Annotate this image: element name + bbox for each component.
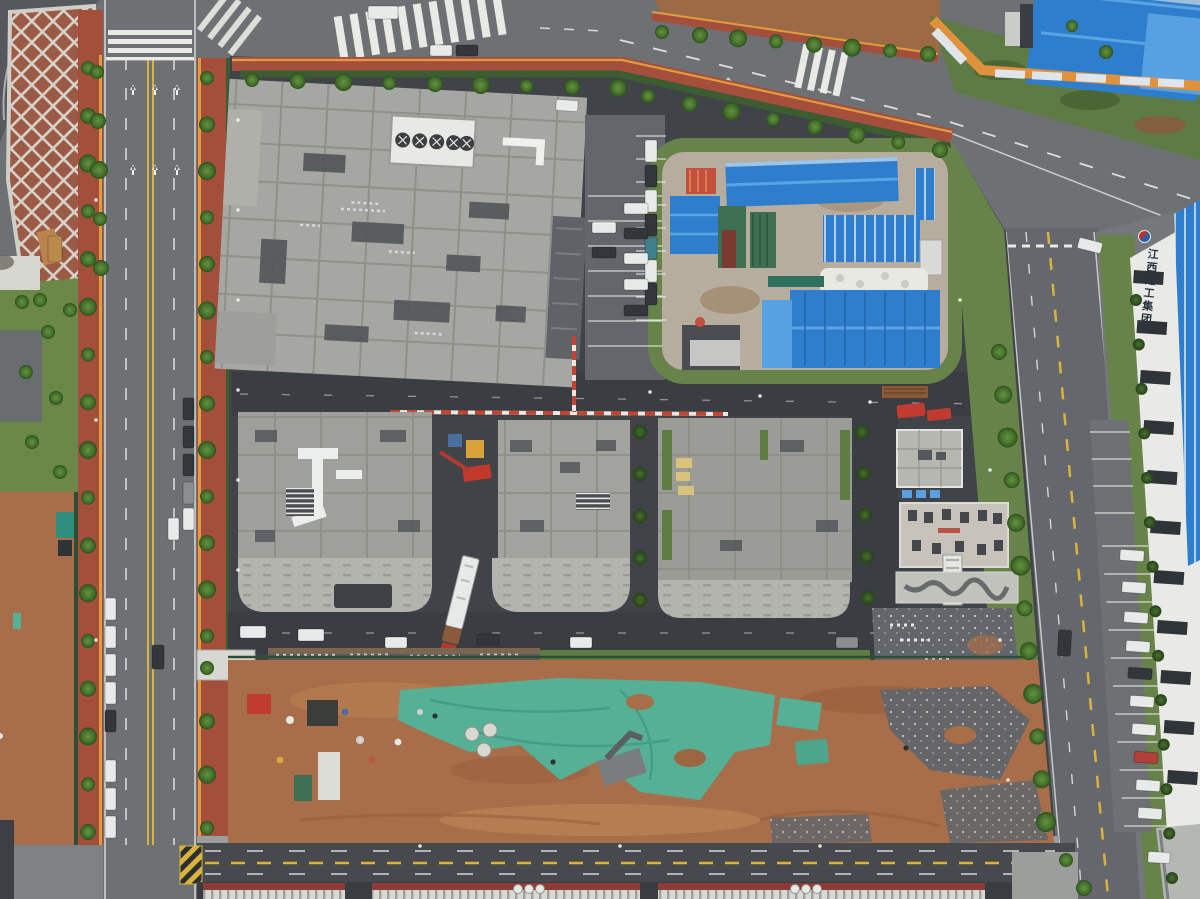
car	[456, 45, 478, 56]
tree	[1017, 600, 1033, 616]
tree	[1066, 20, 1078, 32]
window-band	[1164, 720, 1195, 735]
shrub	[855, 425, 869, 439]
tree	[1020, 642, 1038, 660]
tree	[641, 89, 655, 103]
tree	[848, 126, 866, 144]
tree	[80, 251, 96, 267]
small-tarp-scrap	[13, 613, 21, 629]
shrub	[861, 591, 875, 605]
pipe-rack-red	[722, 230, 736, 268]
car	[183, 426, 194, 448]
car	[368, 6, 398, 19]
car	[1120, 549, 1145, 562]
entrance-canopy	[334, 584, 392, 608]
shrub	[633, 593, 647, 607]
car	[624, 279, 648, 290]
tree	[80, 681, 96, 697]
shrub	[633, 425, 647, 439]
bottomleft-pavement	[0, 845, 103, 899]
tree	[729, 29, 747, 47]
lamp-post	[236, 118, 240, 122]
white-stack	[318, 752, 340, 800]
car	[1057, 630, 1071, 657]
long-building-g	[896, 572, 1018, 603]
blue-shed-south	[790, 290, 940, 368]
manhole	[550, 759, 555, 764]
car	[105, 598, 116, 620]
shrub	[1152, 650, 1164, 662]
car	[1132, 723, 1157, 736]
shrub	[1155, 694, 1167, 706]
blue-shed-west	[670, 196, 720, 254]
lamp-post	[958, 298, 962, 302]
lamp-post	[868, 400, 872, 404]
factory-annex	[215, 311, 278, 366]
apron-c	[492, 558, 630, 612]
blue-shed-east-col	[915, 168, 935, 220]
lamp-post	[618, 844, 622, 848]
white-tents	[690, 340, 740, 366]
car	[152, 645, 164, 669]
roof-d-grid	[658, 418, 852, 582]
bush	[33, 293, 47, 307]
tree	[81, 204, 95, 218]
left-road-surface	[103, 0, 197, 899]
shrub	[1147, 561, 1159, 573]
shrub	[633, 467, 647, 481]
tarp-hole	[674, 749, 706, 767]
left-road	[103, 0, 197, 899]
car	[183, 398, 194, 420]
lamp-post	[94, 198, 98, 202]
bush	[41, 325, 55, 339]
car	[556, 99, 579, 112]
shrub	[858, 508, 872, 522]
lamp-post	[236, 568, 240, 572]
tree	[692, 27, 708, 43]
warehouse-segment	[203, 883, 345, 899]
car	[1124, 611, 1149, 624]
tree	[198, 441, 216, 459]
shrub	[1136, 383, 1148, 395]
workshop-d	[658, 418, 852, 618]
mini-excavator-cab	[58, 540, 72, 556]
car	[1138, 807, 1163, 820]
tarp-patch	[776, 697, 821, 731]
tree	[994, 386, 1012, 404]
tree	[1033, 770, 1051, 788]
shrub	[1141, 472, 1153, 484]
manhole	[903, 745, 908, 750]
car	[105, 788, 116, 810]
white-structure	[1005, 12, 1021, 46]
tree	[807, 119, 823, 135]
tree	[290, 73, 306, 89]
tree	[80, 394, 96, 410]
car	[105, 760, 116, 782]
car	[48, 236, 62, 262]
tree	[81, 348, 95, 362]
tree	[90, 161, 108, 179]
lamp-post	[236, 208, 240, 212]
car	[1128, 667, 1153, 680]
mini-excavator	[56, 512, 74, 538]
shrub	[857, 467, 871, 481]
shrub	[1158, 739, 1170, 751]
car	[168, 518, 179, 540]
red-shelter	[247, 694, 271, 714]
white-wall-mark	[536, 139, 545, 165]
factory-building	[214, 79, 593, 388]
lamp-post	[648, 390, 652, 394]
aerial-scene	[0, 0, 1200, 899]
tree	[79, 441, 97, 459]
tree	[335, 73, 353, 91]
tree	[93, 260, 109, 276]
window-band	[1167, 770, 1198, 785]
bottom-road	[180, 843, 1075, 884]
shrub	[1163, 828, 1175, 840]
car	[1136, 779, 1161, 792]
lamp-post	[998, 638, 1002, 642]
tree	[90, 65, 104, 79]
car	[1130, 695, 1155, 708]
aerial-photo-stage: 江西建工集团	[0, 0, 1200, 899]
car	[105, 816, 116, 838]
rooftop-fan-unit	[389, 115, 475, 167]
dirt-texture	[440, 804, 760, 836]
lamp-post	[236, 478, 240, 482]
teal-beams	[768, 276, 824, 287]
debris-red	[695, 317, 705, 327]
construction-fence	[74, 492, 78, 845]
tree	[198, 162, 216, 180]
dark-tower	[1020, 4, 1033, 48]
window-band	[1157, 620, 1188, 635]
tree	[200, 71, 214, 85]
lamp-post	[818, 844, 822, 848]
plank-stack	[882, 386, 928, 398]
tree	[806, 37, 822, 53]
window-band	[1153, 570, 1184, 585]
tree	[200, 629, 214, 643]
tarp-hole	[626, 694, 654, 710]
tree	[722, 102, 740, 120]
tree	[564, 79, 580, 95]
tree	[520, 79, 534, 93]
lamp-post	[94, 638, 98, 642]
window-band	[1160, 670, 1191, 685]
shrub	[1166, 872, 1178, 884]
tree	[682, 96, 698, 112]
car	[624, 228, 648, 239]
car	[183, 508, 194, 530]
apron-d	[658, 580, 850, 618]
tree	[198, 581, 216, 599]
tree	[200, 211, 214, 225]
tree	[427, 76, 443, 92]
car	[1134, 751, 1159, 764]
tree	[198, 302, 216, 320]
blue-units	[902, 490, 940, 498]
bush	[25, 435, 39, 449]
tree	[200, 350, 214, 364]
tree	[199, 256, 215, 272]
tree	[200, 821, 214, 835]
car	[183, 454, 194, 476]
bush	[63, 303, 77, 317]
company-logo-icon	[1138, 230, 1151, 243]
tree	[1007, 514, 1025, 532]
shrub	[1149, 605, 1161, 617]
car	[592, 222, 616, 233]
tree	[200, 490, 214, 504]
workshop-c	[492, 420, 630, 612]
yard-dirt-patch	[700, 286, 760, 314]
slope-dirt-patch	[1134, 116, 1186, 134]
hatch-box	[180, 846, 202, 884]
tree	[655, 25, 669, 39]
car	[645, 140, 657, 162]
louver-bank	[576, 492, 610, 510]
lamp-post	[1006, 778, 1010, 782]
top-road-surface	[197, 0, 662, 58]
car	[624, 253, 648, 264]
tree	[199, 396, 215, 412]
far-left-lane	[0, 820, 14, 899]
shrub	[860, 550, 874, 564]
tree	[932, 142, 948, 158]
tree	[80, 824, 96, 840]
top-road-west	[197, 0, 662, 60]
tree	[93, 212, 107, 226]
tree	[472, 76, 490, 94]
blue-shed-long	[725, 157, 898, 207]
tree	[79, 728, 97, 746]
car	[105, 682, 116, 704]
car	[105, 626, 116, 648]
lamp-post	[236, 298, 240, 302]
gatehouse	[897, 430, 962, 487]
car	[240, 626, 266, 638]
bush	[53, 465, 67, 479]
tree	[843, 39, 861, 57]
tree	[81, 634, 95, 648]
car	[624, 203, 648, 214]
car	[430, 45, 452, 56]
slope-bushes	[1060, 90, 1120, 110]
tree	[80, 538, 96, 554]
car	[570, 637, 592, 648]
bush	[19, 365, 33, 379]
bush	[49, 391, 63, 405]
tree	[609, 79, 627, 97]
shrub	[1144, 516, 1156, 528]
tree	[1023, 684, 1043, 704]
car	[105, 710, 116, 732]
blue-tarp	[448, 434, 462, 447]
car	[477, 634, 499, 645]
car	[1126, 640, 1151, 653]
lamp-post	[988, 468, 992, 472]
tree	[79, 298, 97, 316]
car	[1148, 851, 1171, 863]
tree	[198, 766, 216, 784]
lamp-post	[94, 418, 98, 422]
green-boards	[294, 775, 312, 801]
lamp-post	[236, 388, 240, 392]
tree	[883, 44, 897, 58]
factory-west-wing	[223, 109, 262, 207]
car	[624, 305, 648, 316]
tree	[769, 34, 783, 48]
excavator	[466, 440, 484, 458]
workshop-b	[238, 412, 432, 612]
car	[105, 654, 116, 676]
car	[645, 165, 657, 187]
dark-hut	[307, 700, 338, 726]
car	[592, 247, 616, 258]
car	[298, 629, 324, 641]
tree	[90, 113, 106, 129]
shrub	[633, 551, 647, 565]
tree	[200, 661, 214, 675]
tree	[1010, 556, 1030, 576]
shrub	[633, 509, 647, 523]
tree	[891, 135, 905, 149]
lamp-post	[418, 844, 422, 848]
tree	[79, 584, 97, 602]
tree	[81, 491, 95, 505]
tree	[245, 73, 259, 87]
tree	[766, 112, 780, 126]
tree	[1059, 853, 1073, 867]
tree	[1004, 472, 1020, 488]
tarp-patch	[795, 738, 829, 765]
tree	[991, 344, 1007, 360]
bush	[15, 295, 29, 309]
tree	[1029, 729, 1045, 745]
pipe-stack-2	[750, 212, 776, 268]
tree	[81, 777, 95, 791]
warehouse-segment	[372, 883, 640, 899]
car	[1122, 581, 1147, 594]
blue-shed-striped	[823, 215, 920, 262]
tree	[1099, 45, 1113, 59]
car	[183, 482, 194, 504]
shrub	[1160, 783, 1172, 795]
tree	[920, 46, 936, 62]
tree	[1076, 880, 1092, 896]
tree	[199, 535, 215, 551]
shrub	[1138, 427, 1150, 439]
blue-shed-south-2	[762, 300, 792, 368]
tree	[998, 427, 1018, 447]
car	[385, 637, 407, 648]
lamp-post	[758, 394, 762, 398]
tree	[199, 117, 215, 133]
tree	[1036, 812, 1056, 832]
manhole	[432, 713, 437, 718]
car	[836, 637, 858, 648]
tree	[199, 713, 215, 729]
tree	[382, 76, 396, 90]
